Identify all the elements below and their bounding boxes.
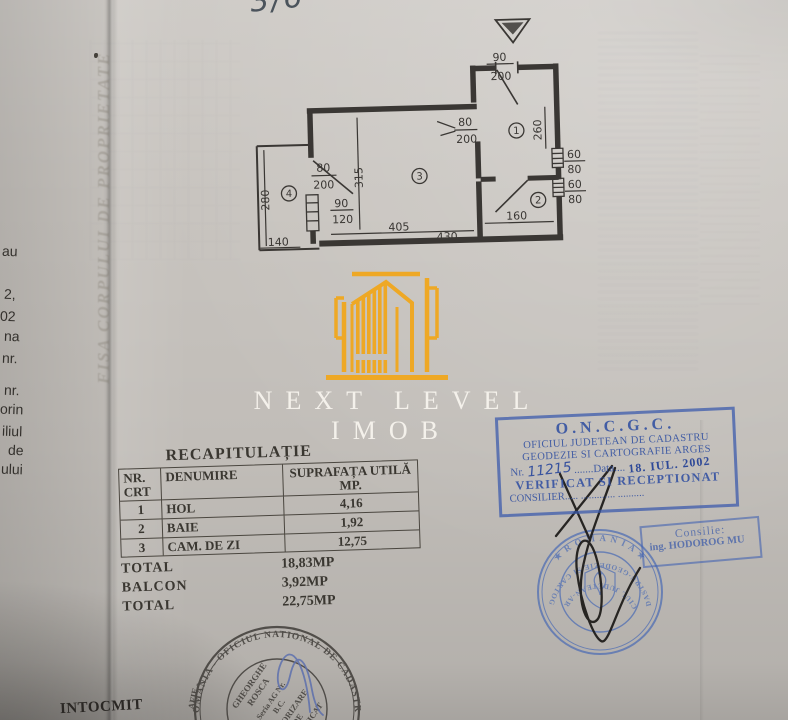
balcony-walls — [257, 145, 320, 251]
bleedthrough-vertical-text: FISA CORPULUI DE PROPRIETATE — [94, 52, 114, 384]
stamp-authorization-text: GHEORGHE ROSCA Seria AG Nr. B.C. AUTORIZ… — [229, 659, 327, 720]
recap-table: NR. CRT DENUMIRE SUPRAFAȚA UTILĂ MP. 1 H… — [118, 459, 421, 558]
oncgc-stamp: O.N.C.G.C. OFICIUL JUDETEAN DE CADASTRU … — [495, 407, 739, 518]
stamp-country-text: ★ R O M A N I A ★ — [551, 533, 648, 563]
dim-left-window-height: 120 — [332, 213, 353, 227]
margin-fragment: na — [4, 328, 20, 345]
dim-right-window2-width: 60 — [568, 178, 582, 191]
total-label: TOTAL — [121, 557, 281, 578]
dim-interior-door-height: 200 — [456, 133, 477, 147]
total-label: TOTAL — [122, 595, 282, 616]
margin-fragment: 02 — [0, 308, 16, 325]
handwritten-page-number: 3/6 — [248, 0, 306, 20]
margin-fragment: ului — [1, 461, 23, 478]
recap-row-nr: 1 — [120, 501, 163, 521]
stamp-cert-word1: AUTORIZARE — [269, 687, 310, 720]
room-3-label: 3 — [416, 171, 423, 182]
dim-right-window1-height: 80 — [567, 163, 581, 176]
room-4-label: 4 — [286, 189, 293, 200]
room-numbers: 1 2 3 4 — [280, 122, 546, 214]
oncgc-consilier-dots: ............. .......... — [581, 488, 645, 502]
stamp-left-arc-fragment: AFIE - — [186, 682, 201, 710]
stamp-cert-word3: CERTIFICAT — [287, 700, 325, 720]
prepared-by-label: INTOCMIT — [60, 697, 144, 718]
stamp-name-line2: ROSCA — [245, 676, 272, 708]
dim-room3-height: 315 — [352, 167, 366, 188]
dim-entry-door-width: 90 — [492, 51, 506, 64]
consilier-stamp: Consilie: ing. HODOROG MU — [639, 516, 762, 568]
north-arrow-icon — [495, 19, 530, 43]
oncgc-nr-label: Nr. — [510, 466, 524, 479]
walls — [306, 63, 563, 244]
margin-fragment: orin — [0, 401, 24, 418]
stamp-category: B.C. — [271, 698, 287, 716]
dimension-lines — [256, 62, 588, 248]
recap-row-area: 12,75 — [285, 530, 419, 552]
oncgc-consilier-label: CONSILIER..... — [509, 491, 578, 505]
dim-interior-door-width: 80 — [458, 116, 472, 129]
recap-header-area: SUPRAFAȚA UTILĂ MP. — [283, 460, 418, 496]
door-symbols — [311, 61, 529, 217]
dim-overall-width: 430 — [436, 230, 457, 244]
recap-header-name: DENUMIRE — [161, 465, 284, 501]
dim-left-window-width: 90 — [334, 197, 348, 210]
bleedthrough-texture — [598, 30, 698, 370]
dim-right-window1-width: 60 — [567, 148, 581, 161]
svg-text:★ R O M A N I A ★: ★ R O M A N I A ★ — [551, 533, 648, 563]
balcon-label: BALCON — [122, 576, 282, 597]
margin-fragment: 2, — [4, 286, 16, 302]
recap-row-nr: 2 — [121, 519, 164, 539]
room-2-label: 2 — [535, 195, 542, 206]
stamp-cert-word2: DE — [290, 711, 305, 720]
scanned-cadastral-document: { "page": { "handwritten_number": "3/6",… — [0, 0, 788, 720]
dim-balcony-height: 280 — [259, 189, 273, 210]
dim-room3-width: 405 — [388, 220, 409, 234]
dim-room1-height: 260 — [531, 119, 545, 140]
recap-totals: TOTAL 18,83MP BALCON 3,92MP TOTAL 22,75M… — [121, 552, 423, 615]
balcon-value: 3,92MP — [281, 574, 328, 591]
dim-room2-width: 160 — [506, 209, 527, 223]
bleedthrough-texture — [700, 55, 760, 305]
margin-fragment: iliul — [2, 423, 23, 440]
window-symbols — [305, 148, 565, 231]
dim-left-door-width: 80 — [316, 161, 330, 174]
margin-fragment: nr. — [4, 382, 20, 399]
margin-fragment: nr. — [2, 350, 18, 367]
recap-section: RECAPITULAȚIE NR. CRT DENUMIRE SUPRAFAȚA… — [117, 439, 422, 619]
recap-row-name: CAM. DE ZI — [163, 534, 285, 555]
floor-plan: 90 200 80 200 80 200 90 120 60 80 60 80 … — [254, 18, 588, 251]
recap-header-nr: NR. CRT — [119, 468, 162, 502]
total-value: 18,83MP — [281, 555, 335, 573]
margin-fragment: de — [8, 442, 24, 459]
dim-balcony-width: 140 — [268, 235, 289, 249]
recap-row-nr: 3 — [121, 538, 164, 557]
room-1-label: 1 — [513, 126, 520, 137]
dim-right-window2-height: 80 — [568, 193, 582, 206]
signature-blue — [278, 654, 323, 715]
margin-fragment: au — [2, 243, 18, 260]
total-value: 22,75MP — [282, 593, 336, 611]
stamp-series: Seria AG Nr. — [255, 680, 288, 720]
stamp-name-line1: GHEORGHE — [230, 661, 269, 711]
dim-entry-door-height: 200 — [490, 70, 511, 84]
brand-logo-icon — [326, 274, 448, 380]
dim-left-door-height: 200 — [313, 178, 334, 192]
eagle-emblem-icon — [585, 566, 615, 608]
paper-shading — [0, 0, 788, 720]
drawing-overlay: 90 200 80 200 80 200 90 120 60 80 60 80 … — [0, 0, 788, 720]
